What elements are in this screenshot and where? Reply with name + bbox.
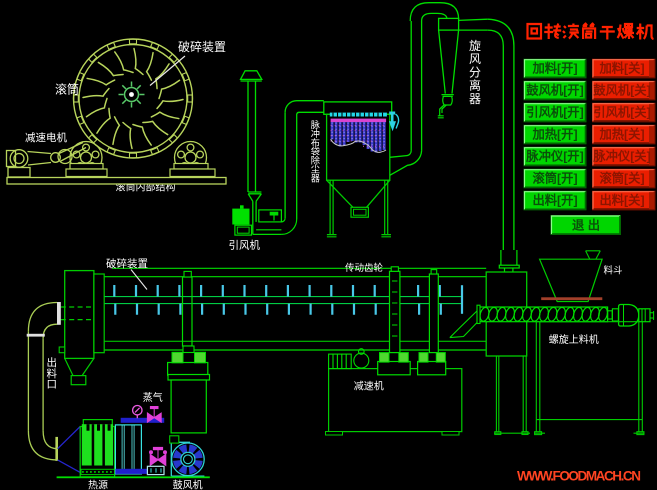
svg-text:破碎装置: 破碎装置 xyxy=(178,39,226,54)
svg-text:引风机[开]: 引风机[开] xyxy=(526,105,583,120)
svg-text:旋风分离器: 旋风分离器 xyxy=(469,39,481,106)
svg-text:热源: 热源 xyxy=(88,479,108,490)
svg-text:引风机[关]: 引风机[关] xyxy=(593,105,650,120)
svg-text:加料[关]: 加料[关] xyxy=(598,61,644,76)
svg-text:加热[开]: 加热[开] xyxy=(531,127,577,142)
svg-text:螺旋上料机: 螺旋上料机 xyxy=(549,333,599,346)
svg-text:蒸气: 蒸气 xyxy=(143,391,163,404)
svg-text:引风机: 引风机 xyxy=(229,239,261,252)
svg-text:出料口: 出料口 xyxy=(47,356,58,391)
svg-text:脉冲布袋除尘器: 脉冲布袋除尘器 xyxy=(311,119,320,183)
svg-text:退 出: 退 出 xyxy=(572,217,600,232)
svg-text:出料[关]: 出料[关] xyxy=(599,193,644,208)
svg-text:减速电机: 减速电机 xyxy=(25,131,67,144)
svg-text:料斗: 料斗 xyxy=(604,265,623,277)
svg-text:脉冲仪[开]: 脉冲仪[开] xyxy=(525,149,583,164)
svg-text:滚筒: 滚筒 xyxy=(55,82,79,97)
svg-text:滚筒[开]: 滚筒[开] xyxy=(532,171,577,186)
svg-text:鼓风机[开]: 鼓风机[开] xyxy=(526,83,583,98)
svg-text:加热[关]: 加热[关] xyxy=(598,127,644,142)
svg-text:鼓风机[关]: 鼓风机[关] xyxy=(593,83,650,98)
svg-text:加料[开]: 加料[开] xyxy=(531,61,577,76)
svg-text:出料[开]: 出料[开] xyxy=(532,193,577,208)
svg-text:破碎装置: 破碎装置 xyxy=(106,257,148,270)
svg-text:减速机: 减速机 xyxy=(354,380,384,393)
svg-text:滚筒[关]: 滚筒[关] xyxy=(599,171,644,186)
svg-text:传动齿轮: 传动齿轮 xyxy=(345,262,384,274)
svg-text:脉冲仪[关]: 脉冲仪[关] xyxy=(592,149,650,164)
svg-text:鼓风机: 鼓风机 xyxy=(173,479,203,490)
svg-text:WWW.FOODMACH.CN: WWW.FOODMACH.CN xyxy=(517,469,641,484)
